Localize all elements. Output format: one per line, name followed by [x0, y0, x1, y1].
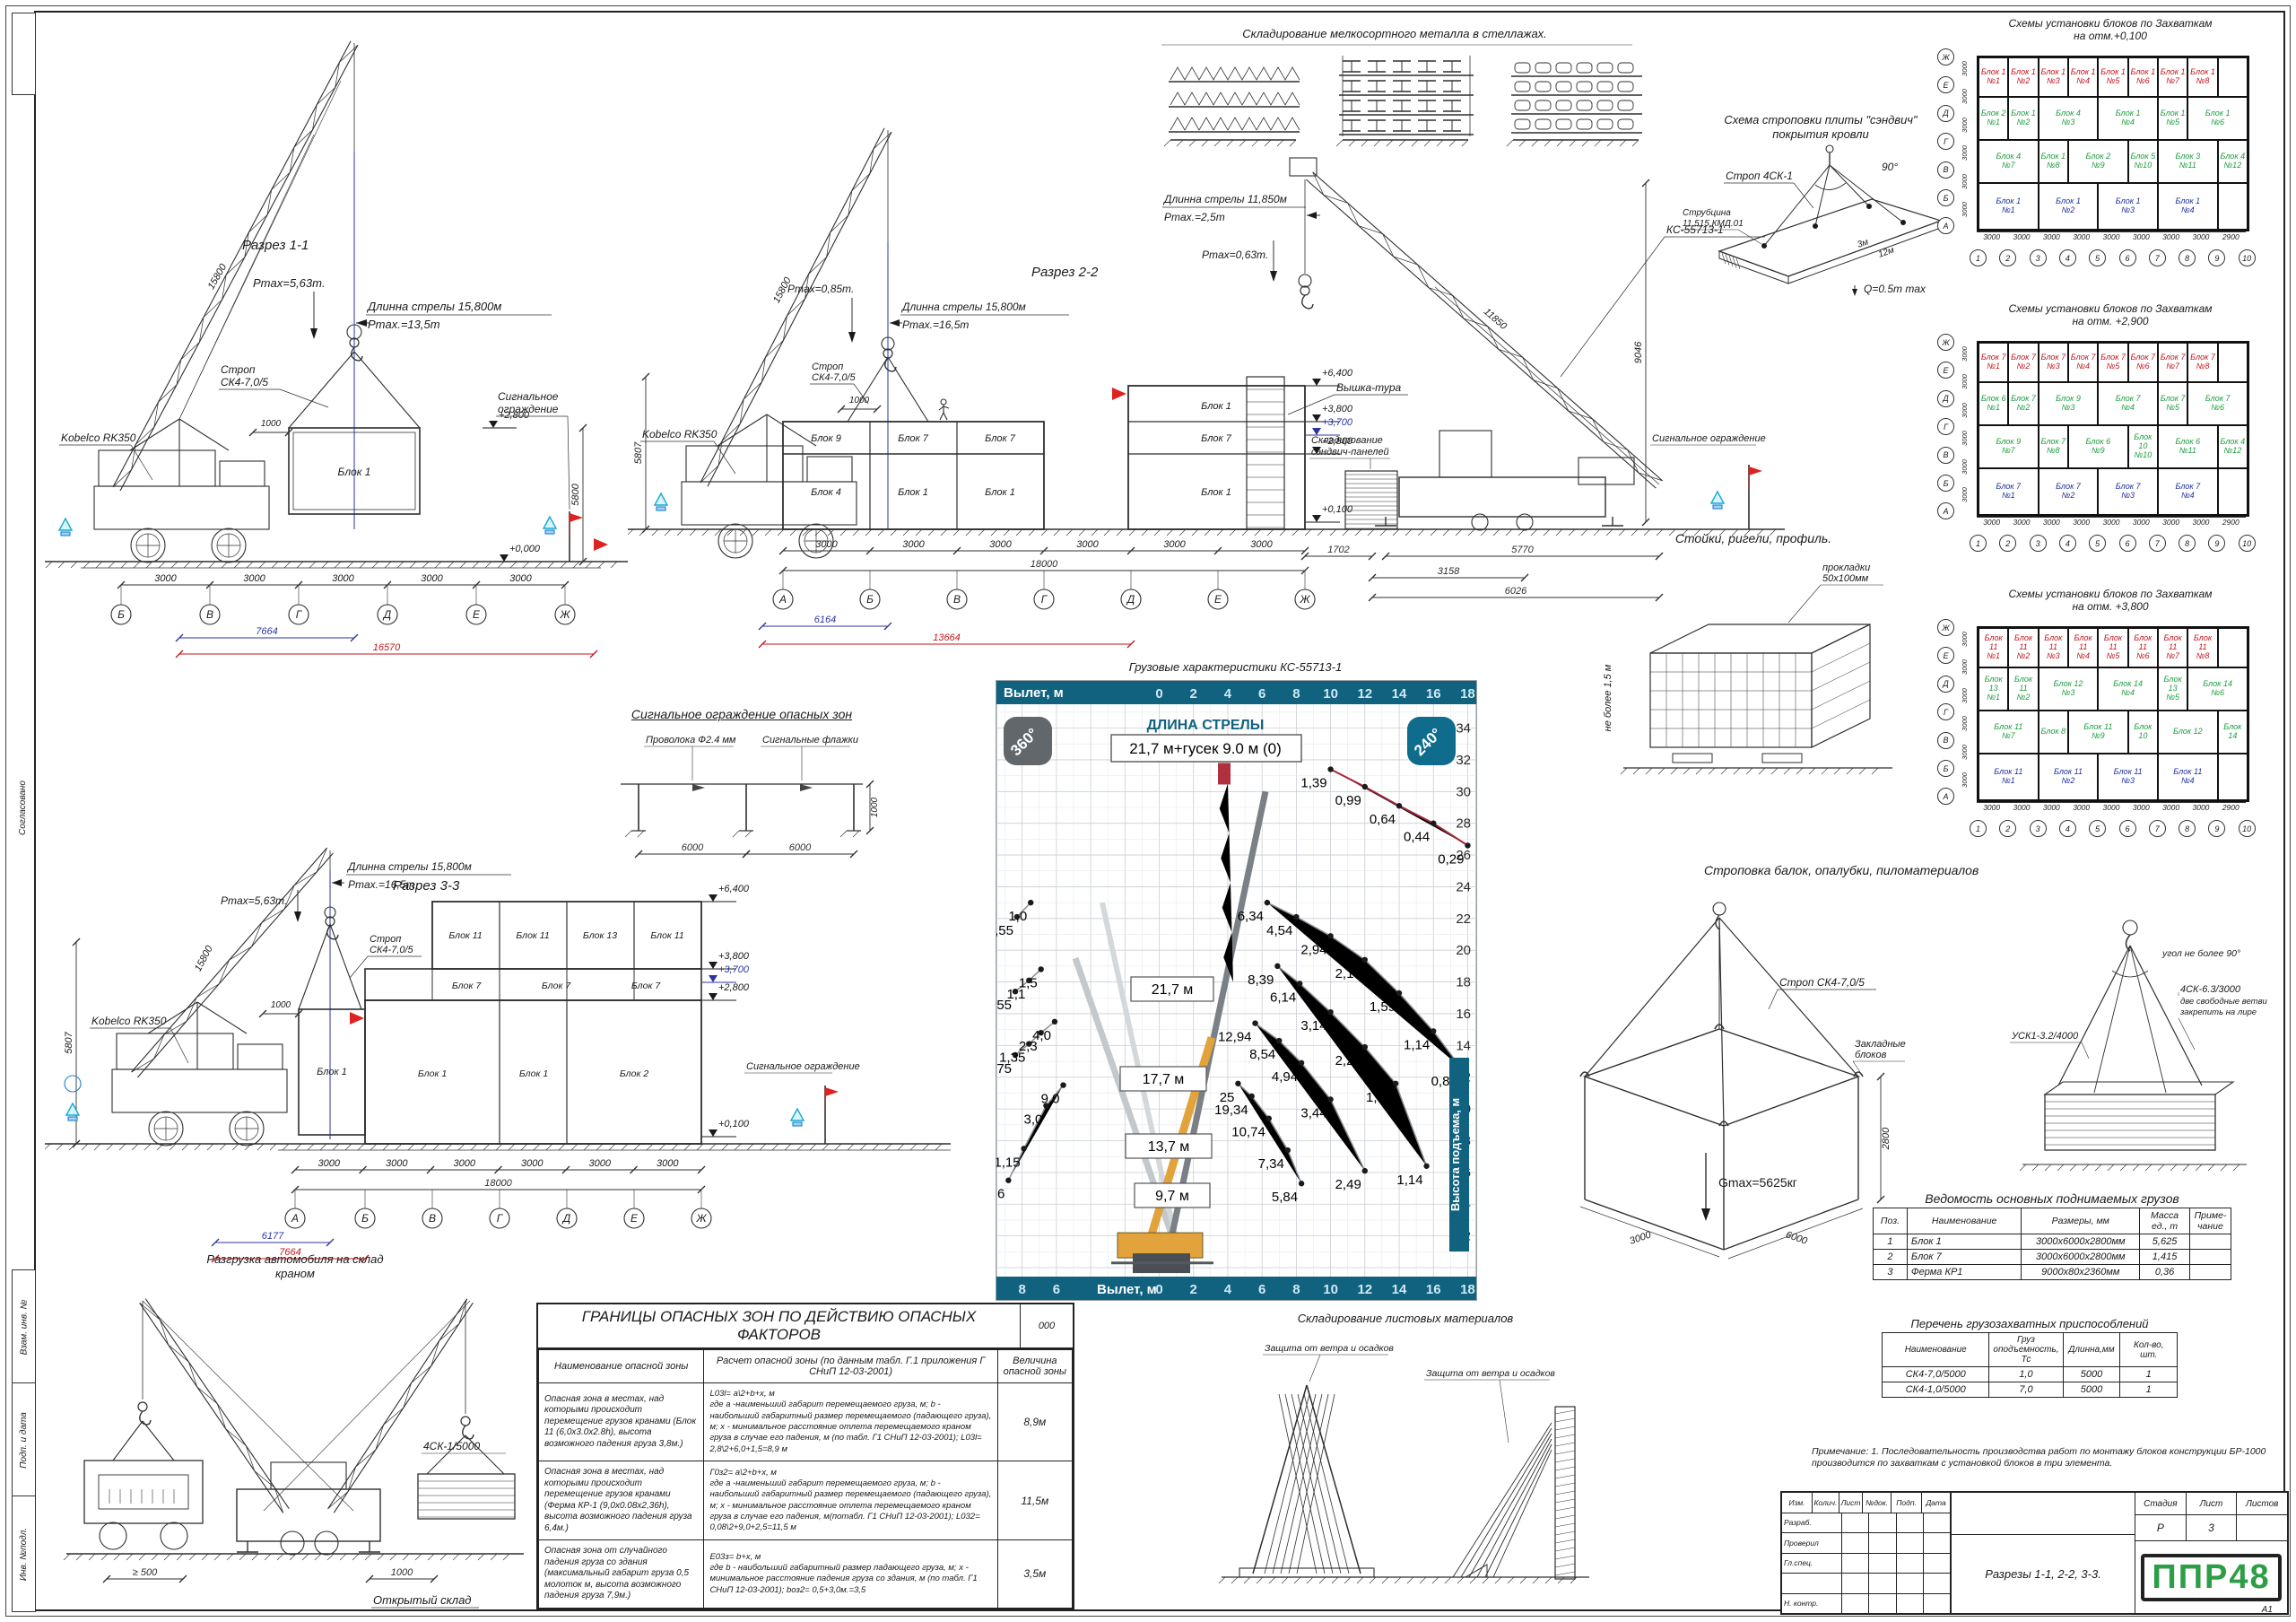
doc-title: Разрезы 1-1, 2-2, 3-3.: [1952, 1535, 2135, 1613]
drawing-element: [1869, 1574, 1896, 1593]
drawing-label: 21,7 м: [1152, 982, 1194, 998]
drawing-element: №2: [2017, 77, 2031, 86]
drawing-element: Наименование: [1883, 1333, 1989, 1367]
drawing-element: [1555, 1475, 1575, 1478]
drawing-element: Блок 11№1: [1979, 754, 2039, 800]
drawing-element: [2218, 468, 2248, 515]
drawing-element: Блок 1№4: [2098, 97, 2158, 140]
drawing-element: Г: [1937, 418, 1954, 435]
drawing-label: 6026: [1505, 586, 1527, 597]
drawing-element: Блок 4№12: [2218, 425, 2248, 468]
drawing-element: Блок 12№3: [2039, 667, 2099, 711]
drawing-element: [1299, 1060, 1304, 1066]
drawing-element: [1515, 119, 1530, 129]
drawing-element: [328, 1299, 467, 1509]
drawing-element: [810, 1144, 816, 1150]
drawing-element: №2: [2017, 652, 2031, 661]
drawing-element: [1733, 257, 1736, 268]
drawing-element: [383, 1144, 389, 1150]
drawing-element: [139, 1554, 145, 1560]
drawing-element: [1726, 255, 1729, 266]
drawing-element: [1247, 377, 1284, 529]
drawing-element: №1: [1987, 404, 2000, 413]
drawing-label: 0,44: [1404, 830, 1430, 845]
drawing-label: +0,000: [509, 544, 541, 554]
drawing-element: [2070, 1164, 2076, 1171]
drawing-element: [1164, 140, 1170, 146]
drawing-element: [259, 562, 265, 568]
drawing-element: [1393, 1081, 1398, 1086]
drawing-element: [1292, 529, 1299, 536]
drawing-element: Блок 7№1Блок 7№2Блок 7№3Блок 7№4Блок 7№5…: [1977, 341, 2249, 517]
drawing-element: [1769, 990, 1778, 1009]
drawing-label: Складирование мелкосортного металла в ст…: [1242, 27, 1547, 40]
drawing-element: №5: [2166, 693, 2179, 702]
drawing-element: Масса ед., т: [2140, 1208, 2190, 1234]
drawing-element: №10: [2134, 451, 2152, 460]
drawing-element: [1812, 681, 1870, 710]
drawing-element: 3000: [1961, 459, 1969, 475]
bundle-sling: угол не более 90°4СК-6.3/3000две свободн…: [1996, 906, 2274, 1202]
drawing-element: 2900: [2216, 518, 2246, 530]
drawing-element: 1Блок 13000х6000х2800мм5,625: [1874, 1234, 2231, 1250]
drawing-element: [82, 1144, 88, 1150]
drawing-element: [747, 1144, 753, 1150]
drawing-label: Д: [382, 608, 392, 621]
drawing-element: [652, 529, 658, 536]
drawing-element: [1066, 529, 1073, 536]
drawing-element: А: [1937, 217, 1954, 234]
drawing-element: Блок 12: [2158, 711, 2218, 754]
drawing-element: [239, 1554, 246, 1560]
drawing-element: [1041, 529, 1048, 536]
drawing-element: [840, 529, 847, 536]
drawing-element: 10: [2239, 535, 2256, 552]
drawing-label: Д: [561, 1212, 571, 1225]
drawing-label: 3000: [989, 539, 1012, 550]
drawing-element: №7: [2166, 652, 2179, 661]
drawing-label: Сигнальное: [498, 390, 559, 403]
drawing-label: Блок 1: [1201, 487, 1231, 498]
drawing-element: Блок 7№4: [2158, 468, 2218, 515]
drawing-element: [594, 538, 608, 551]
drawing-label: 18: [1456, 975, 1471, 990]
drawing-label: 14: [1456, 1038, 1471, 1053]
drawing-element: [1192, 529, 1198, 536]
drawing-element: 2900: [2216, 232, 2246, 245]
drawing-element: 1: [2120, 1382, 2178, 1398]
drawing-label: не более 1,5 м: [1603, 664, 1613, 731]
drawing-element: Блок 1№5: [2098, 57, 2127, 97]
drawing-element: 300030003000300030003000300030002900: [1977, 517, 2246, 530]
drawing-element: [503, 1554, 509, 1560]
drawing-label: Длинна стрелы 15,800м: [366, 300, 501, 313]
drawing-label: Pmax.=13,5m: [368, 318, 440, 331]
drawing-label: 3000: [521, 1158, 544, 1169]
drawing-element: [2083, 1164, 2089, 1171]
drawing-element: [113, 1421, 143, 1461]
drawing-label: 5,84: [1272, 1190, 1298, 1205]
drawing-element: [1869, 1533, 1896, 1553]
drawing-element: 3000: [1961, 145, 1969, 161]
drawing-element: [94, 1144, 100, 1150]
drawing-element: [100, 1522, 126, 1549]
drawing-label: Защита от ветра и осадков: [1426, 1368, 1555, 1379]
drawing-element: [978, 529, 985, 536]
drawing-element: [94, 486, 269, 529]
drawing-label: Б: [866, 593, 874, 606]
drawing-element: [396, 1144, 402, 1150]
drawing-element: [164, 1554, 170, 1560]
drawing-element: [1812, 624, 1870, 747]
drawing-element: [1719, 918, 1724, 1126]
drawing-element: [953, 529, 960, 536]
drawing-element: [2133, 1164, 2139, 1171]
drawing-element: Колич.: [1813, 1493, 1839, 1513]
drawing-element: 3000: [1961, 90, 1969, 105]
drawing-element: №3: [2047, 77, 2060, 86]
drawing-element: Блок 11№3: [2039, 628, 2068, 667]
drawing-element: [1457, 1577, 1464, 1583]
drawing-element: [1555, 1435, 1575, 1438]
drawing-element: [99, 1475, 188, 1509]
drawing-label: 8: [1292, 1282, 1300, 1297]
drawing-label: 0,55: [996, 923, 1013, 938]
drawing-element: [1290, 140, 1296, 146]
drawing-element: [1170, 67, 1300, 80]
drawing-element: Блок 7№2: [2008, 382, 2038, 425]
metal-storage-drawing: Складирование мелкосортного металла в ст…: [1144, 25, 1646, 169]
drawing-element: №2: [2017, 362, 2031, 371]
drawing-element: [234, 562, 240, 568]
drawing-element: Блок 14: [2219, 723, 2247, 741]
drawing-element: Блок 1№2: [2008, 57, 2038, 97]
drawing-element: [1813, 223, 1818, 229]
drawing-element: [71, 562, 77, 568]
drawing-element: Опасная зона в местах, над которыми прои…: [539, 1383, 704, 1461]
drawing-element: 3000: [2006, 803, 2036, 815]
drawing-element: [96, 562, 102, 568]
sheets-storage: Складирование листовых материаловЗащита …: [1213, 1308, 1598, 1609]
drawing-element: 3000: [1961, 61, 1969, 76]
drawing-element: [152, 1554, 158, 1560]
drawing-element: [1016, 529, 1022, 536]
drawing-element: [1269, 1577, 1275, 1583]
drawing-element: [354, 352, 420, 428]
drawing-element: [2020, 1164, 2026, 1171]
racks-title: Стойки, ригели, профиль.: [1596, 531, 1910, 545]
drawing-element: [1734, 768, 1740, 774]
drawing-element: [1091, 529, 1098, 536]
drawing-element: [1294, 1577, 1300, 1583]
drawing-element: [140, 1303, 283, 1513]
drawing-element: [1293, 914, 1299, 920]
drawing-label: Pmax=5,63m.: [221, 894, 287, 907]
drawing-element: [1368, 529, 1374, 536]
drawing-element: на отм. +3,800: [1930, 601, 2291, 614]
drawing-element: [45, 1144, 50, 1150]
drawing-element: [1357, 1577, 1363, 1583]
drawing-label: 9,0: [1041, 1092, 1060, 1107]
drawing-element: [752, 529, 759, 536]
drawing-element: [360, 562, 366, 568]
drawing-element: Стадия Лист Листов: [2135, 1493, 2287, 1515]
drawing-element: 9: [2208, 249, 2225, 266]
drawing-element: [1784, 768, 1790, 774]
drawing-element: Блок 7№7: [2158, 343, 2187, 382]
drawing-label: +2,800: [718, 982, 750, 993]
drawing-element: Блок 9№7: [1979, 425, 2039, 468]
drawing-element: №3: [2047, 362, 2060, 371]
drawing-element: [1495, 1577, 1501, 1583]
drawing-element: [1205, 529, 1211, 536]
drawing-element: [1361, 140, 1368, 146]
drawing-element: [1418, 529, 1424, 536]
drawing-label: 3,0: [1024, 1112, 1043, 1128]
drawing-element: [410, 562, 416, 568]
lumber-title: Строповка балок, опалубки, пиломатериало…: [1704, 863, 2224, 877]
drawing-label: 3000: [902, 539, 925, 550]
drawing-element: №2: [2017, 118, 2031, 127]
drawing-element: [171, 562, 178, 568]
drawing-element: [1535, 100, 1551, 110]
drawing-element: №8: [2196, 652, 2210, 661]
drawing-element: 3000: [1961, 375, 1969, 390]
section-3-3: 158005807Длинна стрелы 15,800мPmax.=16,5…: [45, 834, 987, 1269]
drawing-element: 3: [1874, 1265, 1908, 1280]
drawing-label: Складирование: [1311, 435, 1383, 446]
drawing-element: [1021, 1146, 1026, 1151]
drawing-label: 4СК-6.3/3000: [2180, 984, 2241, 995]
drawing-element: [299, 924, 330, 1009]
drawing-label: краном: [275, 1267, 315, 1280]
drawing-element: [944, 406, 949, 408]
drawing-label: 2800: [1881, 1127, 1892, 1150]
fence-detail-title: Сигнальное ограждение опасных зон: [603, 707, 881, 721]
drawing-element: Блок 4№7: [1979, 140, 2039, 183]
drawing-element: Блок 1№6: [2128, 57, 2158, 97]
drawing-label: 18: [1460, 686, 1475, 702]
drawing-element: [1179, 529, 1186, 536]
drawing-element: [1847, 768, 1853, 774]
drawing-element: [1556, 63, 1571, 73]
drawing-element: [1924, 1533, 1951, 1553]
drawing-element: 9000х80х2360мм: [2022, 1265, 2140, 1280]
drawing-element: [873, 1144, 879, 1150]
loads-title: Ведомость основных поднимаемых грузов: [1873, 1191, 2231, 1206]
drawing-element: [1327, 1009, 1333, 1015]
drawing-element: [385, 562, 391, 568]
drawing-element: Блок 11: [2099, 634, 2126, 652]
drawing-element: Блок 3№11: [2158, 140, 2218, 183]
drawing-element: [1721, 768, 1727, 774]
drawing-element: [571, 1144, 578, 1150]
drawing-element: [622, 1144, 628, 1150]
drawing-element: [1305, 529, 1311, 536]
drawing-element: [1362, 957, 1368, 963]
drawing-element: 10: [2239, 249, 2256, 266]
drawing-element: 5000: [2063, 1367, 2120, 1382]
drawing-label: 5807: [64, 1031, 74, 1053]
drawing-label: 17,7 м: [1143, 1072, 1185, 1087]
drawing-element: [709, 894, 717, 902]
drawing-element: [1345, 471, 1397, 529]
drawing-element: 2: [1999, 820, 2016, 837]
drawing-element: [835, 1144, 841, 1150]
drawing-label: 6,14: [1270, 990, 1296, 1005]
drawing-label: ≥ 500: [133, 1567, 158, 1578]
drawing-element: №9: [2092, 447, 2105, 456]
title-block-middle: Разрезы 1-1, 2-2, 3-3.: [1952, 1493, 2135, 1613]
drawing-element: Кол-во, шт.: [2120, 1333, 2178, 1367]
drawing-element: Опасная зона от случайного падения груза…: [539, 1540, 1073, 1609]
drawing-element: Д: [1937, 390, 1954, 407]
drawing-element: СК4-1,0/50007,050001: [1883, 1382, 2178, 1398]
drawing-label: Pmax.=2,5m: [1164, 211, 1225, 223]
drawing-element: №6: [2211, 689, 2224, 698]
drawing-element: [322, 562, 328, 568]
drawing-element: В: [1937, 447, 1954, 464]
rigging-panel: Перечень грузозахватных приспособлений Н…: [1882, 1317, 2178, 1398]
drawing-element: 1: [1874, 1234, 1908, 1250]
drawing-element: [1500, 1380, 1509, 1443]
drawing-element: №2: [2062, 206, 2075, 215]
drawing-element: 5000: [2063, 1382, 2120, 1398]
drawing-label: Ж: [695, 1212, 707, 1225]
drawing-element: [1673, 754, 1712, 763]
drawing-element: [1395, 1577, 1401, 1583]
drawing-label: 20: [1456, 943, 1471, 958]
drawing-label: Блок 1: [338, 466, 371, 478]
drawing-element: №6: [2136, 652, 2150, 661]
drawing-element: [1544, 140, 1551, 146]
drawing-label: Q=0.5m max: [1864, 283, 1926, 295]
drawing-element: [1405, 529, 1412, 536]
drawing-element: [422, 562, 429, 568]
drawing-element: [237, 1489, 380, 1541]
drawing-label: 1000: [261, 419, 282, 429]
drawing-element: [440, 1554, 447, 1560]
drawing-element: Блок 10: [2129, 723, 2157, 741]
drawing-label: Сигнальное ограждение: [1652, 433, 1766, 444]
drawing-label: 6,34: [1238, 909, 1264, 924]
drawing-element: [1520, 1577, 1526, 1583]
drawing-element: [1508, 1577, 1514, 1583]
drawing-label: 21,7 м+гусек 9.0 м (0): [1129, 740, 1282, 757]
drawing-element: [878, 529, 884, 536]
drawing-label: 11850: [1482, 306, 1509, 332]
drawing-element: [1555, 1459, 1575, 1462]
drawing-element: [358, 1144, 364, 1150]
drawing-label: 18000: [484, 1178, 512, 1189]
drawing-element: [709, 1144, 716, 1150]
drawing-element: 3000: [2126, 518, 2156, 530]
drawing-element: Блок 1№1: [1979, 183, 2039, 230]
drawing-element: [220, 461, 265, 486]
drawing-element: [1432, 1577, 1439, 1583]
drawing-element: [1555, 1531, 1575, 1535]
drawing-element: Блок 11№4: [2068, 628, 2098, 667]
drawing-label: Блок 1: [985, 487, 1015, 498]
drawing-element: Поз.НаименованиеРазмеры, ммМасса ед., тП…: [1874, 1208, 2231, 1234]
drawing-element: Наименование опасной зоныРасчет опасной …: [539, 1350, 1073, 1383]
rigging-title: Перечень грузозахватных приспособлений: [1882, 1317, 2178, 1330]
drawing-element: Блок 11№7: [1979, 711, 2039, 754]
drawing-element: №4: [2076, 77, 2090, 86]
drawing-element: [848, 332, 856, 343]
drawing-element: [2045, 1094, 2215, 1150]
drawing-label: Gmax=5625кг: [1718, 1175, 1797, 1190]
drawing-label: Закладные: [1855, 1039, 1906, 1050]
drawing-element: №4: [2121, 404, 2135, 413]
drawing-element: [825, 1087, 839, 1096]
drawing-element: Е: [1937, 647, 1954, 664]
drawing-element: [2218, 628, 2248, 667]
drawing-element: Блок 10: [2129, 433, 2157, 451]
drawing-element: [1607, 140, 1613, 146]
drawing-element: [1728, 1208, 1863, 1259]
drawing-element: [2221, 1164, 2227, 1171]
drawing-element: Опасная зона от случайного падения груза…: [539, 1540, 704, 1609]
drawing-element: [372, 562, 378, 568]
drawing-element: [498, 562, 504, 568]
drawing-element: 3000: [1977, 232, 2006, 245]
drawing-element: [1842, 1594, 1869, 1614]
drawing-element: [352, 1554, 359, 1560]
drawing-element: 3: [2030, 820, 2047, 837]
drawing-element: Груз оподъемность, Тс: [1989, 1333, 2063, 1367]
drawing-label: В: [206, 608, 213, 621]
drawing-element: 3000: [1961, 772, 1969, 788]
drawing-element: [1555, 1499, 1575, 1503]
drawing-element: [1255, 529, 1261, 536]
drawing-element: 3000: [1961, 660, 1969, 676]
drawing-label: 2,94: [1300, 942, 1326, 957]
drawing-label: Длинна стрелы 11,850м: [1162, 193, 1287, 205]
drawing-element: 2Блок 73000х6000х2800мм1,415: [1874, 1250, 2231, 1265]
drawing-element: [46, 562, 52, 568]
drawing-element: [418, 1474, 515, 1519]
drawing-element: [184, 562, 190, 568]
drawing-element: 1Блок 13000х6000х2800мм5,6252Блок 73000х…: [1874, 1234, 2231, 1280]
drawing-element: Р 3: [2135, 1515, 2287, 1541]
drawing-label: 1,14: [1404, 1037, 1430, 1052]
drawing-element: [1555, 1443, 1575, 1446]
drawing-element: 3000: [2037, 232, 2066, 245]
drawing-element: [1307, 1577, 1313, 1583]
drawing-label: 1702: [1327, 545, 1349, 555]
drawing-element: Блок 8: [2039, 711, 2068, 754]
block-scheme: Схемы установки блоков по Захваткамна от…: [1930, 18, 2291, 303]
drawing-element: [1580, 1207, 1719, 1257]
drawing-label: 34: [1456, 721, 1471, 737]
drawing-element: 5: [2089, 535, 2106, 552]
drawing-element: [760, 1144, 766, 1150]
drawing-element: Блок 11: [2009, 676, 2037, 693]
drawing-element: Схемы установки блоков по Захваткам: [1930, 303, 2291, 316]
drawing-label: +3,700: [1322, 417, 1353, 428]
loads-table: Поз.НаименованиеРазмеры, ммМасса ед., тП…: [1873, 1208, 2231, 1280]
drawing-element: [1570, 1577, 1577, 1583]
drawing-element: [2145, 1164, 2152, 1171]
drawing-element: [333, 1144, 339, 1150]
drawing-element: [294, 911, 301, 922]
drawing-element: [2170, 1164, 2177, 1171]
drawing-element: Подп. и дата: [19, 1412, 29, 1469]
drawing-element: 10: [2239, 820, 2256, 837]
drawing-element: [807, 457, 852, 482]
drawing-label: 3000: [509, 573, 532, 584]
